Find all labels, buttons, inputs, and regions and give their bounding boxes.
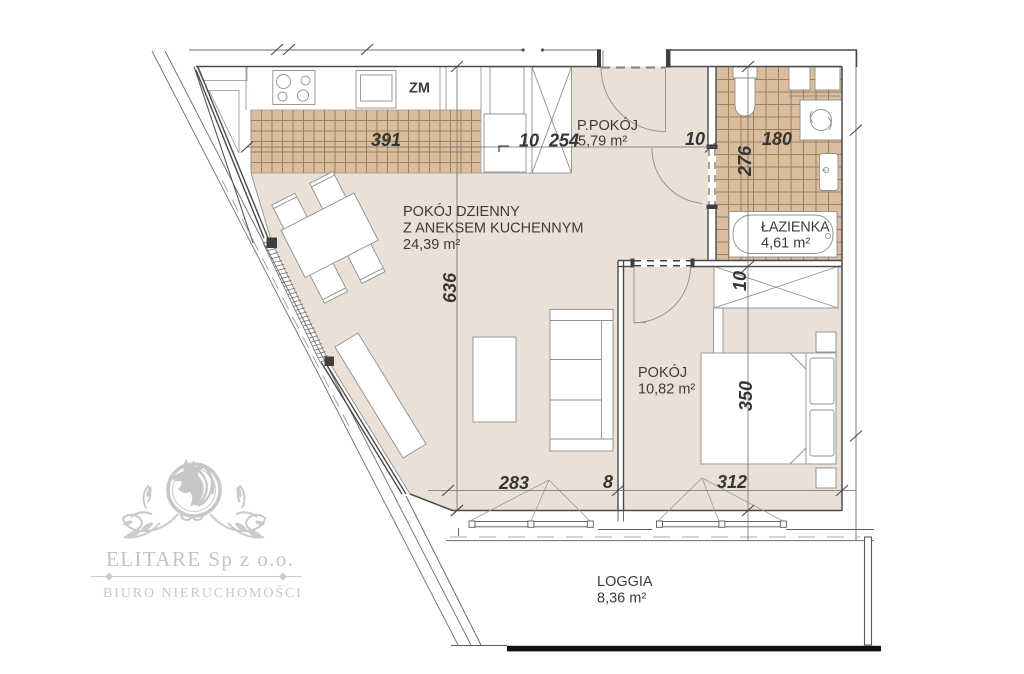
svg-text:4,61 m²: 4,61 m² (761, 236, 810, 252)
svg-text:8,36 m²: 8,36 m² (597, 591, 646, 607)
svg-text:24,39 m²: 24,39 m² (403, 237, 460, 253)
svg-text:LOGGIA: LOGGIA (597, 574, 653, 590)
svg-text:391: 391 (371, 130, 401, 150)
svg-text:POKÓJ: POKÓJ (638, 364, 687, 381)
svg-text:BIURO NIERUCHOMOŚCI: BIURO NIERUCHOMOŚCI (103, 584, 303, 601)
svg-text:10: 10 (730, 271, 750, 291)
svg-text:8: 8 (603, 472, 613, 492)
svg-text:ELITARE Sp z o.o.: ELITARE Sp z o.o. (106, 547, 294, 571)
svg-text:Z ANEKSEM KUCHENNYM: Z ANEKSEM KUCHENNYM (403, 221, 583, 237)
svg-text:636: 636 (440, 272, 460, 303)
svg-text:10: 10 (519, 131, 539, 151)
svg-text:5,79 m²: 5,79 m² (578, 134, 627, 150)
svg-text:254: 254 (548, 131, 579, 151)
svg-text:POKÓJ DZIENNY: POKÓJ DZIENNY (403, 203, 520, 220)
svg-text:350: 350 (736, 381, 756, 411)
svg-text:ŁAZIENKA: ŁAZIENKA (761, 220, 830, 236)
svg-text:283: 283 (498, 473, 529, 493)
svg-text:276: 276 (735, 145, 755, 177)
svg-text:180: 180 (762, 129, 792, 149)
svg-text:ZM: ZM (409, 81, 430, 97)
svg-text:10: 10 (685, 129, 705, 149)
svg-text:312: 312 (717, 472, 747, 492)
svg-text:P.POKÓJ: P.POKÓJ (577, 117, 638, 134)
svg-text:10,82 m²: 10,82 m² (638, 382, 695, 398)
